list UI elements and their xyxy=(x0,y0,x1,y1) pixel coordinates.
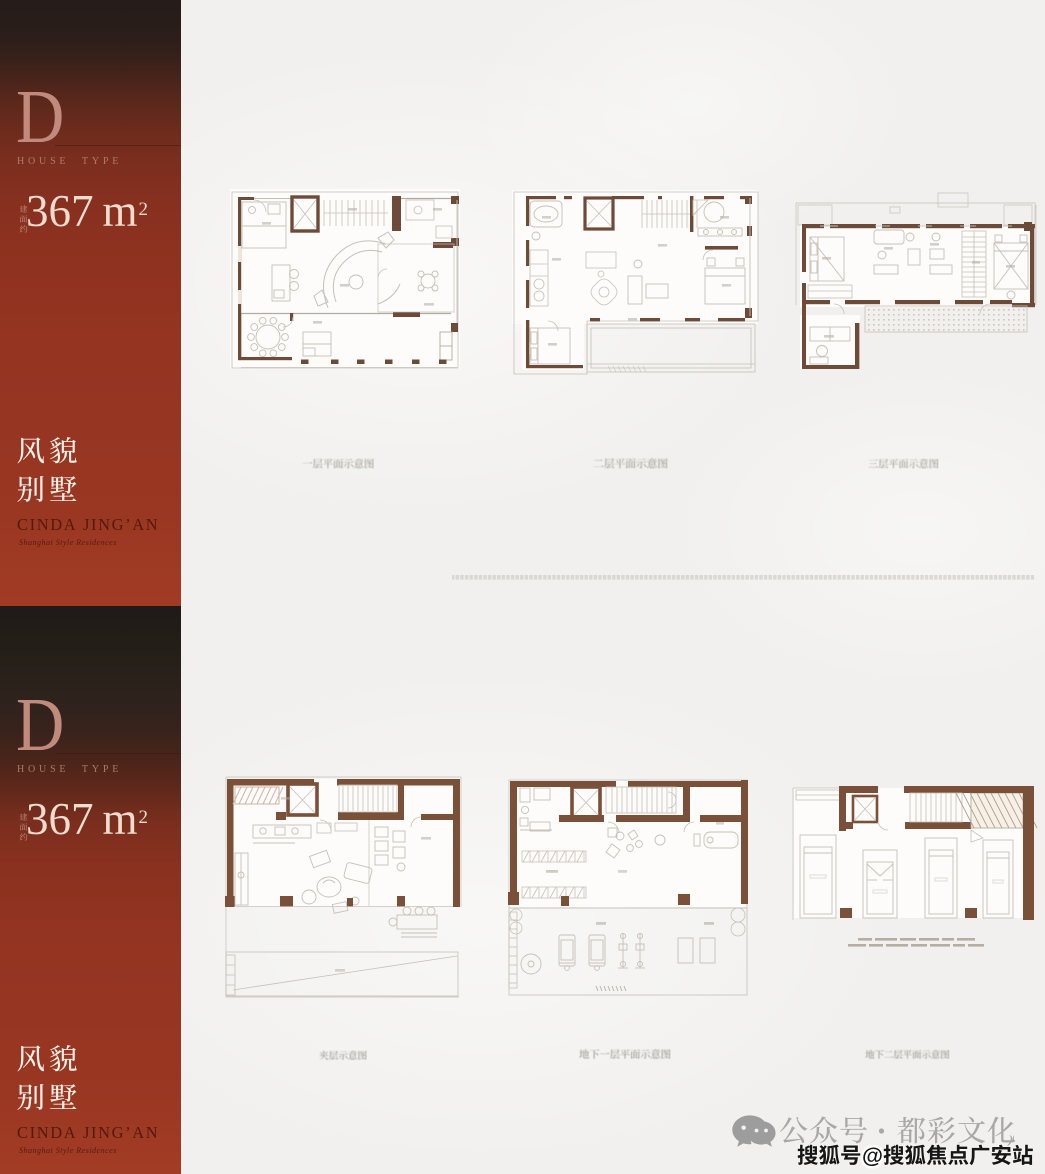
svg-text:@: @ xyxy=(862,1144,883,1168)
